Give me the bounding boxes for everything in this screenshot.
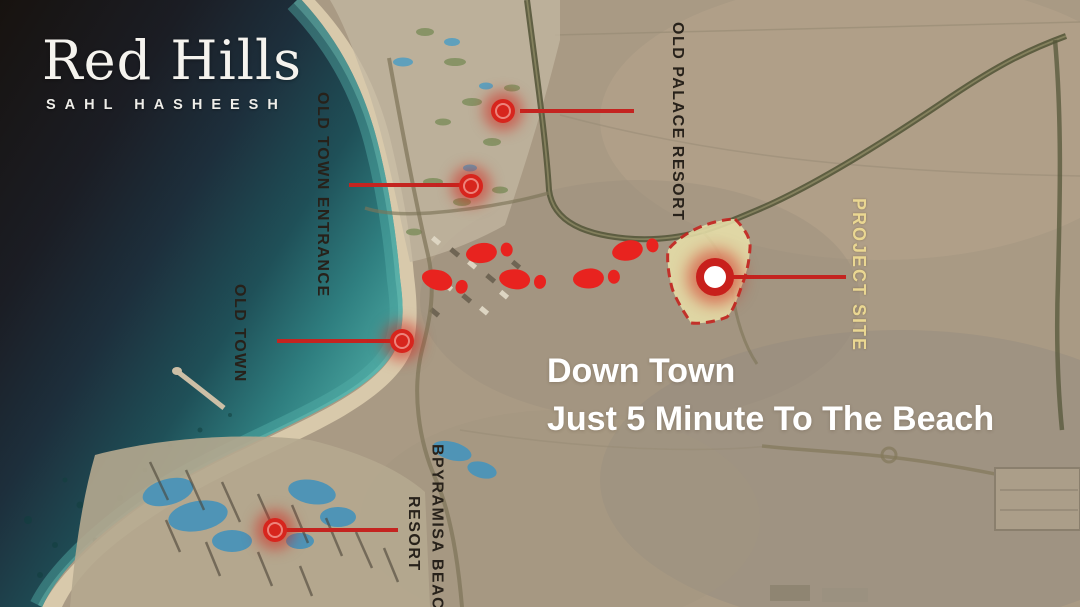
label-old-town-entrance: OLD TOWN ENTRANCE [313,92,331,298]
label-pyramisa-line1: BPYRAMISA BEACH [425,436,448,607]
old-town-entrance-marker [459,174,483,198]
pyramisa-resort-area [70,436,430,607]
old-palace-resort-marker [491,99,515,123]
caption-line1: Down Town [547,347,994,395]
label-pyramisa-beach-resort: BPYRAMISA BEACH RESORT [402,436,448,607]
brand-logo: Red Hills SAHL HASHEESH [42,34,302,113]
map-canvas: Red Hills SAHL HASHEESH OLD PALACE RESOR… [0,0,1080,607]
connector-old-town [277,339,392,343]
connector-old-palace [520,109,634,113]
caption: Down Town Just 5 Minute To The Beach [547,347,994,444]
connector-project-site [726,275,846,279]
connector-old-town-entrance [349,183,461,187]
label-project-site: PROJECT SITE [848,198,869,352]
project-site-marker [696,258,734,296]
label-pyramisa-line2: RESORT [402,436,425,607]
pyramisa-beach-resort-marker [263,518,287,542]
label-old-palace-resort: OLD PALACE RESORT [668,22,686,221]
brand-tagline: SAHL HASHEESH [46,97,302,113]
connector-pyramisa [286,528,398,532]
caption-line2: Just 5 Minute To The Beach [547,395,994,443]
label-old-town: OLD TOWN [230,284,248,383]
old-town-marker [390,329,414,353]
brand-name: Red Hills [42,34,302,88]
footprint-icon [572,266,620,291]
